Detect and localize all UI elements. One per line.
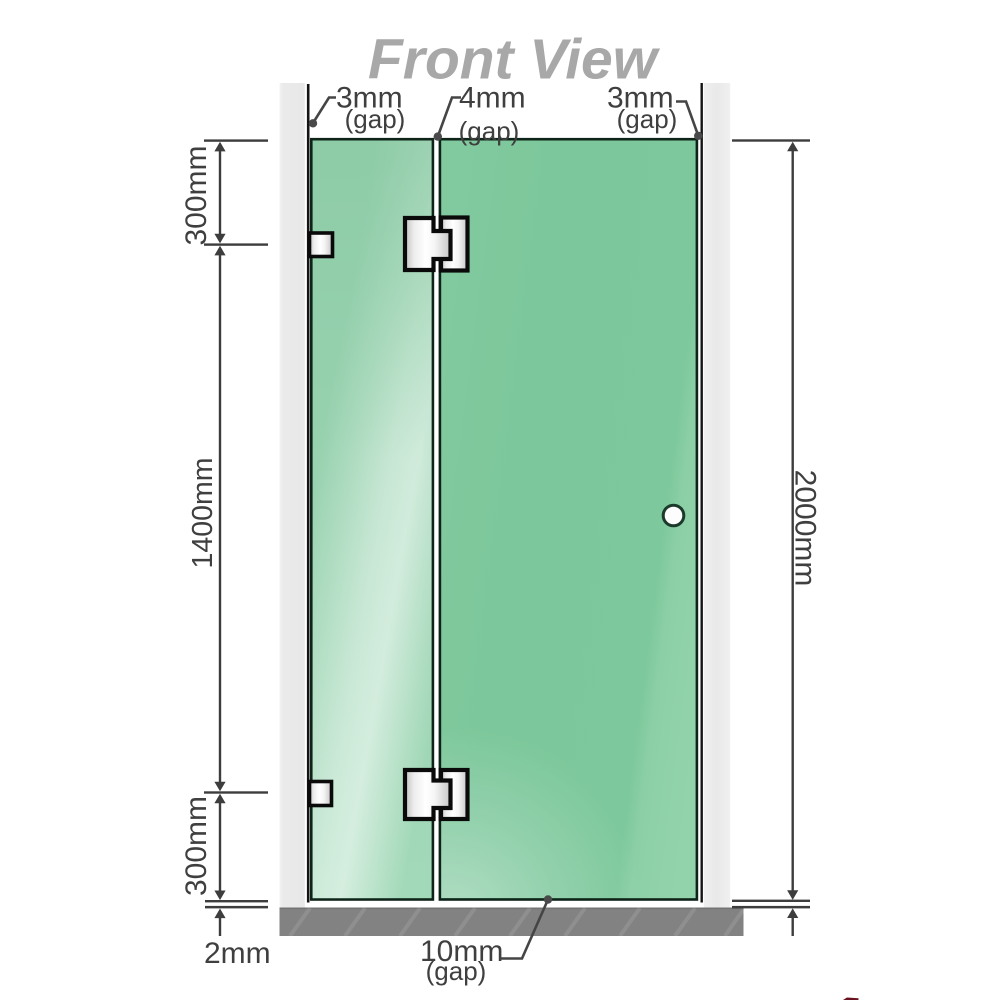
svg-text:300mm: 300mm [180,796,213,896]
svg-text:1400mm: 1400mm [187,458,219,569]
svg-text:(gap): (gap) [459,116,520,146]
svg-text:(gap): (gap) [426,956,487,986]
svg-text:300mm: 300mm [180,145,213,245]
svg-text:4mm: 4mm [459,82,526,115]
svg-text:(gap): (gap) [345,104,406,134]
svg-text:2mm: 2mm [204,937,271,970]
svg-text:(gap): (gap) [617,104,678,134]
svg-text:2000mm: 2000mm [789,470,822,587]
